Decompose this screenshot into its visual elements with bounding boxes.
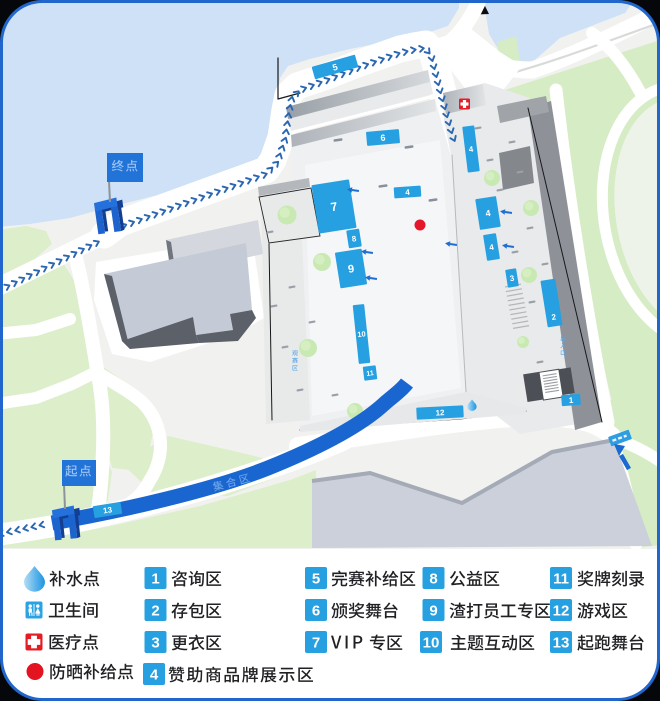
svg-text:12: 12 <box>435 408 445 417</box>
svg-text:13: 13 <box>553 635 570 652</box>
svg-text:4: 4 <box>150 667 159 684</box>
svg-text:11: 11 <box>553 571 569 588</box>
svg-text:7: 7 <box>312 635 320 652</box>
svg-text:10: 10 <box>357 329 366 339</box>
svg-text:6: 6 <box>380 133 386 143</box>
svg-text:5: 5 <box>312 571 320 588</box>
svg-text:12: 12 <box>553 603 570 620</box>
svg-text:2: 2 <box>151 603 159 620</box>
svg-text:10: 10 <box>423 635 440 652</box>
svg-text:9: 9 <box>429 603 437 620</box>
svg-text:11: 11 <box>366 370 374 378</box>
svg-text:1: 1 <box>151 571 159 588</box>
svg-text:8: 8 <box>429 571 437 588</box>
svg-text:3: 3 <box>151 635 159 652</box>
svg-text:6: 6 <box>312 603 320 620</box>
